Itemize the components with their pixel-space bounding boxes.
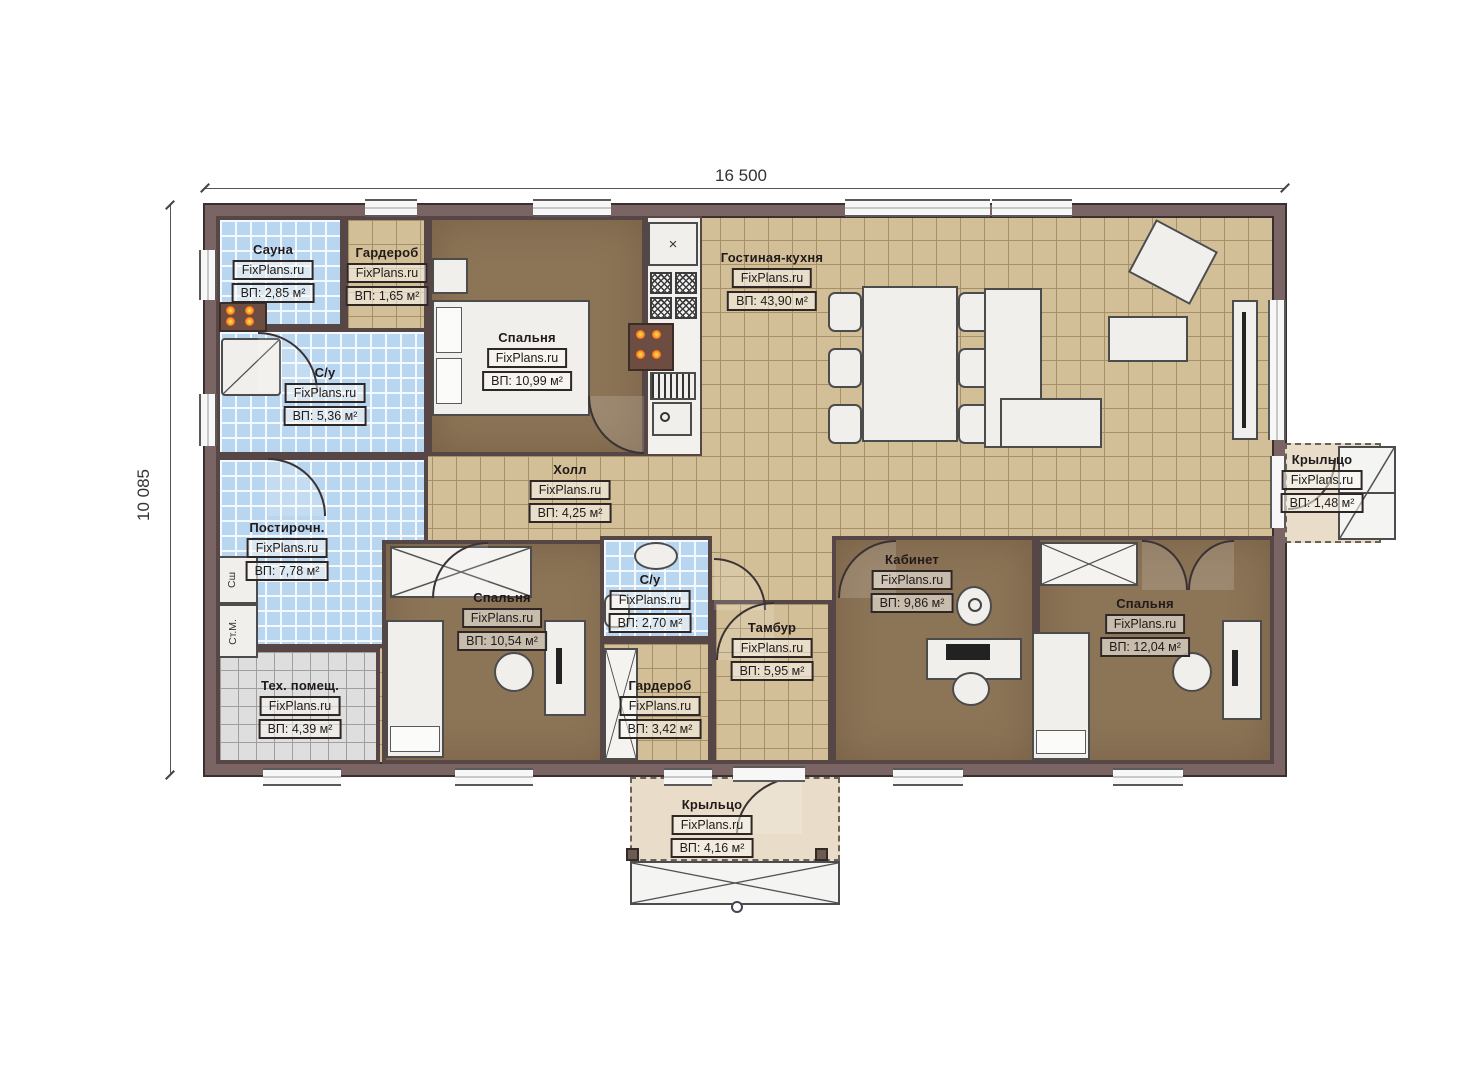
brand-box: FixPlans.ru [260, 696, 341, 716]
hob-burner-icon [650, 297, 672, 319]
burner-dot [636, 350, 645, 359]
dining-chair [828, 404, 862, 444]
brand-box: FixPlans.ru [285, 383, 366, 403]
desk-chair [1172, 652, 1212, 692]
window [664, 768, 712, 786]
monitor [556, 648, 562, 684]
brand-box: FixPlans.ru [610, 590, 691, 610]
stove-dot [226, 317, 235, 326]
window [1113, 768, 1183, 786]
brand-box: FixPlans.ru [732, 268, 813, 288]
area-box: ВП: 12,04 м² [1100, 637, 1190, 657]
area-box: ВП: 10,54 м² [457, 631, 547, 651]
kitchen-sink-bowl [652, 402, 692, 436]
label-bedroom-1: Спальня FixPlans.ru ВП: 10,99 м² [482, 330, 572, 391]
dimension-line-top [205, 188, 1285, 189]
window [263, 768, 341, 786]
stove-dot [245, 306, 254, 315]
porch-post [815, 848, 828, 861]
brand-box: FixPlans.ru [530, 480, 611, 500]
area-box: ВП: 3,42 м² [619, 719, 702, 739]
office-monitor [946, 644, 990, 660]
pillow [436, 307, 462, 353]
window [1268, 300, 1286, 440]
window [845, 199, 990, 217]
pillow [1036, 730, 1086, 754]
brand-box: FixPlans.ru [462, 608, 543, 628]
area-box: ВП: 4,39 м² [259, 719, 342, 739]
label-bathroom-2: С/у FixPlans.ru ВП: 2,70 м² [609, 572, 692, 633]
window [455, 768, 533, 786]
area-box: ВП: 2,85 м² [232, 283, 315, 303]
label-office: Кабинет FixPlans.ru ВП: 9,86 м² [871, 552, 954, 613]
brand-box: FixPlans.ru [487, 348, 568, 368]
brand-box: FixPlans.ru [672, 815, 753, 835]
dining-chair [828, 292, 862, 332]
dimension-width-label: 16 500 [715, 166, 767, 186]
monitor [1232, 650, 1238, 686]
window [992, 199, 1072, 217]
sofa-chaise [1000, 398, 1102, 448]
desk [1222, 620, 1262, 720]
range-stove [628, 323, 674, 371]
dimension-height-label: 10 085 [134, 469, 154, 521]
area-box: ВП: 4,25 м² [529, 503, 612, 523]
brand-box: FixPlans.ru [247, 538, 328, 558]
label-living-kitchen: Гостиная-кухня FixPlans.ru ВП: 43,90 м² [721, 250, 823, 311]
label-tambour: Тамбур FixPlans.ru ВП: 5,95 м² [731, 620, 814, 681]
hob-burner-icon [650, 272, 672, 294]
porch-steps-center-dot [731, 901, 743, 913]
desk [544, 620, 586, 716]
area-box: ВП: 2,70 м² [609, 613, 692, 633]
brand-box: FixPlans.ru [1105, 614, 1186, 634]
dining-table [862, 286, 958, 442]
label-bedroom-2: Спальня FixPlans.ru ВП: 10,54 м² [457, 590, 547, 651]
pillow [436, 358, 462, 404]
stove-dot [226, 306, 235, 315]
hob-burner-icon [675, 272, 697, 294]
brand-box: FixPlans.ru [1282, 470, 1363, 490]
label-bathroom-1: С/у FixPlans.ru ВП: 5,36 м² [284, 365, 367, 426]
label-sauna: Сауна FixPlans.ru ВП: 2,85 м² [232, 242, 315, 303]
pillow [390, 726, 440, 752]
window [199, 250, 217, 300]
label-wardrobe-1: Гардероб FixPlans.ru ВП: 1,65 м² [346, 245, 429, 306]
area-box: ВП: 7,78 м² [246, 561, 329, 581]
area-box: ВП: 4,16 м² [671, 838, 754, 858]
area-box: ВП: 5,95 м² [731, 661, 814, 681]
porch-post [626, 848, 639, 861]
fridge-icon: × [648, 222, 698, 266]
area-box: ВП: 9,86 м² [871, 593, 954, 613]
wardrobe-x [1040, 542, 1138, 586]
label-tech-room: Тех. помещ. FixPlans.ru ВП: 4,39 м² [259, 678, 342, 739]
burner-dot [636, 330, 645, 339]
label-porch-right: Крыльцо FixPlans.ru ВП: 1,48 м² [1281, 452, 1364, 513]
brand-box: FixPlans.ru [620, 696, 701, 716]
brand-box: FixPlans.ru [732, 638, 813, 658]
label-wardrobe-2: Гардероб FixPlans.ru ВП: 3,42 м² [619, 678, 702, 739]
area-box: ВП: 1,48 м² [1281, 493, 1364, 513]
label-hall: Холл FixPlans.ru ВП: 4,25 м² [529, 462, 612, 523]
area-box: ВП: 43,90 м² [727, 291, 817, 311]
faucet-dot [660, 412, 670, 422]
brand-box: FixPlans.ru [347, 263, 428, 283]
washbasin [634, 542, 678, 570]
window [199, 394, 217, 446]
tv-panel [1242, 312, 1246, 428]
office-chair [952, 672, 990, 706]
burner-dot [652, 350, 661, 359]
porch-bottom-steps [630, 861, 840, 905]
nightstand [432, 258, 468, 294]
label-bedroom-3: Спальня FixPlans.ru ВП: 12,04 м² [1100, 596, 1190, 657]
dimension-line-left [170, 205, 171, 775]
desk-chair [494, 652, 534, 692]
area-box: ВП: 1,65 м² [346, 286, 429, 306]
kitchen-sink [650, 372, 696, 400]
label-laundry: Постирочн. FixPlans.ru ВП: 7,78 м² [246, 520, 329, 581]
hob-burner-icon [675, 297, 697, 319]
area-box: ВП: 5,36 м² [284, 406, 367, 426]
door-opening-porch [733, 766, 805, 782]
dining-chair [828, 348, 862, 388]
window [893, 768, 963, 786]
stove-dot [245, 317, 254, 326]
coffee-table [1108, 316, 1188, 362]
washer-label: Ст.М. [227, 619, 239, 645]
brand-box: FixPlans.ru [872, 570, 953, 590]
burner-dot [652, 330, 661, 339]
dryer-label: Сш [226, 572, 238, 588]
window [365, 199, 417, 217]
plant-center [968, 598, 982, 612]
area-box: ВП: 10,99 м² [482, 371, 572, 391]
floor-plan-page: { "brand": "FixPlans.ru", "dimensions": … [0, 0, 1473, 1080]
label-porch-bottom: Крыльцо FixPlans.ru ВП: 4,16 м² [671, 797, 754, 858]
window [533, 199, 611, 217]
brand-box: FixPlans.ru [233, 260, 314, 280]
